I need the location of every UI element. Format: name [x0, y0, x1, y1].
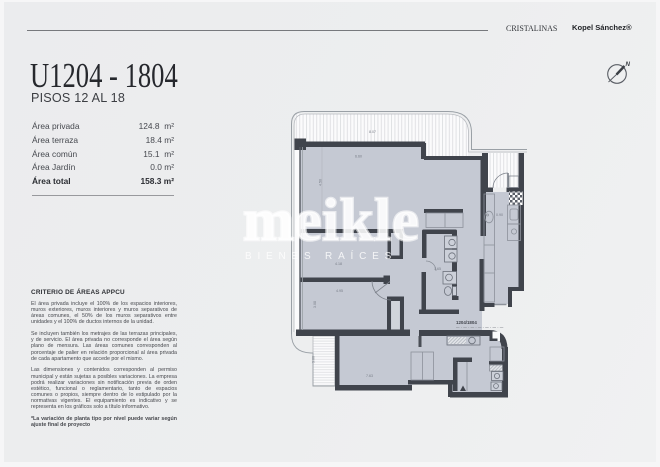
svg-text:6.60: 6.60: [355, 155, 362, 159]
svg-text:4.95: 4.95: [336, 289, 343, 293]
svg-text:4.50: 4.50: [319, 179, 323, 186]
svg-text:N: N: [626, 61, 631, 68]
svg-text:4.18: 4.18: [335, 262, 342, 266]
svg-text:7.63: 7.63: [366, 374, 373, 378]
svg-text:3.60: 3.60: [312, 356, 316, 363]
svg-text:0.90: 0.90: [496, 213, 503, 217]
svg-text:1.65: 1.65: [434, 267, 441, 271]
svg-text:1204/1804: 1204/1804: [456, 320, 477, 325]
svg-text:3.08: 3.08: [313, 301, 317, 308]
svg-text:8.07: 8.07: [369, 130, 376, 134]
